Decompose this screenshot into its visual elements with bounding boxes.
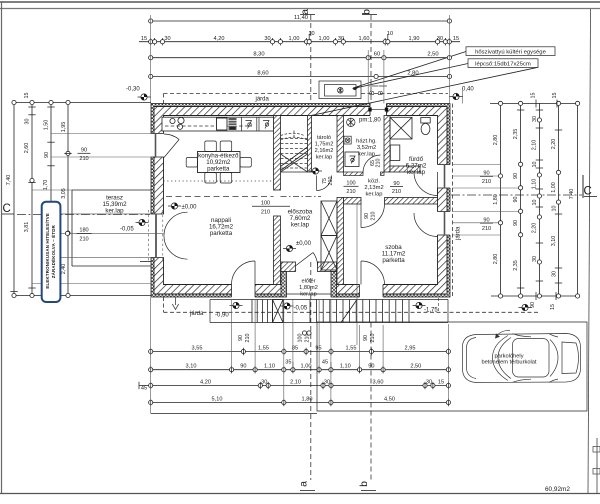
svg-text:90: 90 (483, 171, 489, 177)
svg-text:3,05: 3,05 (61, 188, 67, 199)
svg-text:10: 10 (387, 31, 393, 37)
svg-text:a: a (298, 481, 310, 487)
svg-text:60: 60 (374, 52, 380, 58)
svg-text:210: 210 (482, 179, 491, 185)
svg-text:1,55: 1,55 (346, 345, 357, 351)
svg-text:2,20: 2,20 (532, 223, 538, 234)
svg-text:90: 90 (363, 335, 369, 341)
svg-text:90: 90 (44, 152, 50, 158)
svg-text:előtér: előtér (302, 279, 316, 285)
svg-text:ker.lap: ker.lap (365, 192, 382, 198)
svg-text:30: 30 (532, 256, 538, 262)
svg-text:11,40: 11,40 (294, 15, 308, 21)
svg-text:járda: járda (456, 226, 462, 241)
svg-text:2,80: 2,80 (493, 135, 499, 146)
svg-text:90: 90 (513, 220, 519, 226)
svg-text:90: 90 (513, 173, 519, 179)
svg-text:2,10: 2,10 (290, 379, 301, 385)
svg-text:-0,90: -0,90 (215, 313, 229, 319)
svg-text:parketta: parketta (210, 230, 233, 237)
svg-text:2,10: 2,10 (532, 140, 538, 151)
svg-text:60,92m2: 60,92m2 (545, 486, 570, 493)
svg-text:210: 210 (261, 210, 270, 216)
svg-text:1,10: 1,10 (532, 179, 538, 190)
svg-text:2,80: 2,80 (407, 70, 418, 76)
svg-text:2,35: 2,35 (513, 260, 519, 271)
svg-text:2,50: 2,50 (427, 52, 438, 58)
svg-text:15: 15 (141, 36, 147, 42)
svg-text:35: 35 (285, 360, 291, 366)
svg-text:1,00: 1,00 (551, 182, 557, 193)
svg-text:B: B (369, 91, 376, 95)
svg-text:1,10: 1,10 (264, 364, 275, 370)
svg-text:45: 45 (322, 360, 328, 366)
svg-text:ker.lap: ker.lap (291, 222, 310, 229)
svg-text:1,95: 1,95 (61, 122, 67, 133)
svg-text:ker.lap: ker.lap (358, 152, 375, 158)
svg-text:1,50: 1,50 (44, 120, 50, 131)
svg-text:hőszivattyú kültéri egysége: hőszivattyú kültéri egysége (475, 50, 546, 56)
svg-text:210: 210 (392, 189, 401, 195)
svg-text:-0,05: -0,05 (120, 227, 134, 233)
svg-text:1,75m2: 1,75m2 (315, 142, 334, 148)
svg-text:30: 30 (532, 116, 538, 122)
svg-text:180: 180 (79, 228, 88, 234)
svg-text:15: 15 (550, 304, 556, 310)
svg-text:100: 100 (261, 201, 270, 207)
svg-text:parketta: parketta (382, 257, 405, 264)
svg-text:90: 90 (364, 213, 370, 219)
svg-text:1,10: 1,10 (340, 364, 351, 370)
svg-text:15: 15 (24, 93, 30, 99)
svg-text:2,35: 2,35 (513, 129, 519, 140)
svg-text:210: 210 (79, 156, 88, 162)
svg-text:2,50: 2,50 (410, 364, 421, 370)
svg-text:3,60: 3,60 (373, 379, 384, 385)
svg-text:3,55: 3,55 (192, 345, 203, 351)
svg-text:30: 30 (264, 36, 270, 42)
svg-text:30: 30 (324, 379, 330, 385)
svg-text:210: 210 (328, 177, 334, 186)
svg-text:1,60: 1,60 (359, 36, 370, 42)
svg-text:95: 95 (315, 345, 321, 351)
svg-text:B: B (378, 91, 385, 95)
svg-text:b: b (358, 481, 370, 487)
svg-text:4,20: 4,20 (214, 36, 225, 42)
svg-text:2,40: 2,40 (61, 264, 67, 275)
svg-text:1,00: 1,00 (301, 364, 312, 370)
svg-text:10: 10 (532, 200, 538, 206)
svg-text:10: 10 (552, 206, 558, 212)
svg-text:7,40: 7,40 (569, 189, 575, 200)
svg-text:1,00: 1,00 (289, 36, 300, 42)
svg-text:1,80: 1,80 (302, 396, 313, 402)
svg-text:1,00: 1,00 (319, 36, 330, 42)
svg-text:15: 15 (531, 93, 537, 99)
svg-text:30: 30 (552, 271, 558, 277)
svg-text:2,16m2: 2,16m2 (315, 148, 334, 154)
svg-text:járda: járda (189, 311, 204, 317)
svg-text:3,10: 3,10 (186, 364, 197, 370)
svg-text:15: 15 (438, 379, 444, 385)
svg-text:pm:1,80: pm:1,80 (359, 118, 381, 124)
svg-text:90: 90 (240, 364, 246, 370)
svg-text:3,52m2: 3,52m2 (357, 145, 376, 151)
svg-text:b: b (361, 9, 373, 15)
svg-text:ZÁRADÉKOLVA – ÉTDR: ZÁRADÉKOLVA – ÉTDR (51, 224, 56, 278)
svg-text:1,55: 1,55 (258, 345, 269, 351)
svg-text:2,20: 2,20 (551, 139, 557, 150)
svg-text:közl.: közl. (368, 179, 380, 185)
svg-text:parketta: parketta (207, 166, 230, 173)
svg-text:210: 210 (245, 334, 251, 343)
svg-text:járda: járda (255, 97, 270, 103)
svg-text:90: 90 (483, 217, 489, 223)
svg-text:C: C (3, 203, 11, 215)
svg-text:ker.lap: ker.lap (300, 292, 316, 298)
svg-text:2,95: 2,95 (405, 345, 416, 351)
svg-text:15: 15 (552, 93, 558, 99)
svg-text:210: 210 (482, 226, 491, 232)
svg-text:90: 90 (368, 364, 374, 370)
svg-text:90: 90 (530, 302, 536, 308)
svg-text:5,10: 5,10 (212, 396, 223, 402)
svg-text:3,81: 3,81 (24, 222, 30, 233)
svg-text:1,90: 1,90 (409, 36, 420, 42)
svg-text:1,70: 1,70 (43, 180, 49, 191)
svg-text:210: 210 (346, 189, 355, 195)
svg-text:C: C (584, 186, 592, 198)
svg-text:ker.lap: ker.lap (316, 155, 332, 161)
svg-text:4,20: 4,20 (200, 379, 211, 385)
svg-text:8,60: 8,60 (257, 70, 268, 76)
svg-text:90: 90 (81, 148, 87, 154)
svg-text:-0,30: -0,30 (126, 87, 140, 93)
svg-text:±0,00: ±0,00 (296, 241, 312, 247)
svg-text:2,60: 2,60 (24, 143, 30, 154)
svg-text:8,30: 8,30 (253, 52, 264, 58)
svg-text:2,80: 2,80 (493, 254, 499, 265)
svg-text:210: 210 (370, 334, 376, 343)
svg-text:210: 210 (79, 237, 88, 243)
svg-text:210: 210 (376, 159, 382, 168)
svg-text:15: 15 (453, 36, 459, 42)
svg-text:tároló: tároló (317, 135, 331, 141)
svg-text:ELEKTRONIKUSAN HITELESÍTVE: ELEKTRONIKUSAN HITELESÍTVE (45, 213, 50, 289)
svg-text:0,40: 0,40 (462, 87, 474, 93)
svg-text:1,80m2: 1,80m2 (299, 285, 318, 291)
svg-text:90: 90 (513, 197, 519, 203)
svg-text:10: 10 (308, 31, 314, 37)
svg-text:3,10: 3,10 (551, 236, 557, 247)
svg-text:90: 90 (238, 335, 244, 341)
svg-text:30: 30 (426, 379, 432, 385)
svg-text:30: 30 (437, 36, 443, 42)
svg-text:4,50: 4,50 (384, 396, 395, 402)
svg-text:±0,00: ±0,00 (182, 205, 198, 211)
svg-text:házt.hg.: házt.hg. (356, 139, 377, 145)
svg-text:-0,05: -0,05 (294, 306, 308, 312)
svg-text:betonelem térburkolat: betonelem térburkolat (481, 360, 536, 366)
svg-text:90: 90 (393, 181, 399, 187)
svg-text:45: 45 (141, 386, 147, 392)
svg-text:lépcső:15db17x25cm: lépcső:15db17x25cm (475, 62, 531, 68)
svg-text:7,40: 7,40 (6, 175, 12, 186)
svg-text:ker.lap: ker.lap (105, 208, 124, 215)
svg-text:10: 10 (532, 162, 538, 168)
svg-text:2,13m2: 2,13m2 (364, 185, 383, 191)
svg-text:30: 30 (338, 36, 344, 42)
svg-text:1,80: 1,80 (493, 194, 499, 205)
svg-text:30: 30 (261, 379, 267, 385)
svg-text:100: 100 (298, 334, 304, 343)
svg-text:30: 30 (164, 36, 170, 42)
svg-text:ker.lap: ker.lap (407, 169, 426, 176)
svg-text:210: 210 (371, 212, 377, 221)
svg-text:30: 30 (25, 119, 31, 125)
svg-text:100: 100 (346, 181, 355, 187)
